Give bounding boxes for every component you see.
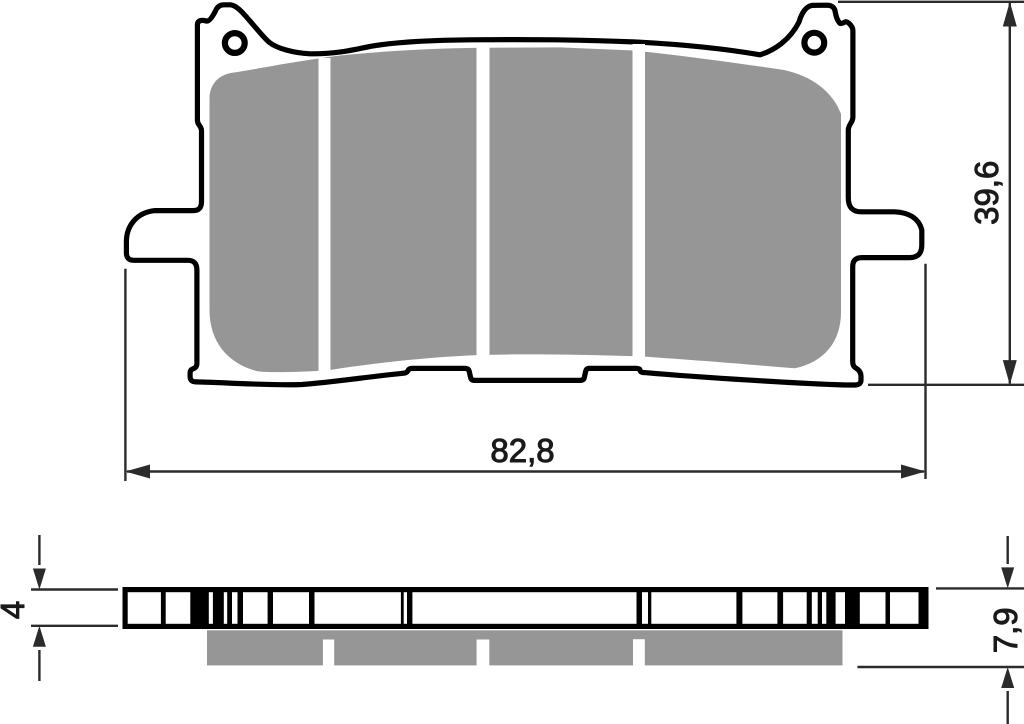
svg-text:39,6: 39,6 <box>968 161 1005 225</box>
svg-text:82,8: 82,8 <box>490 432 554 469</box>
svg-text:4: 4 <box>0 601 31 619</box>
svg-text:7,9: 7,9 <box>987 607 1024 653</box>
